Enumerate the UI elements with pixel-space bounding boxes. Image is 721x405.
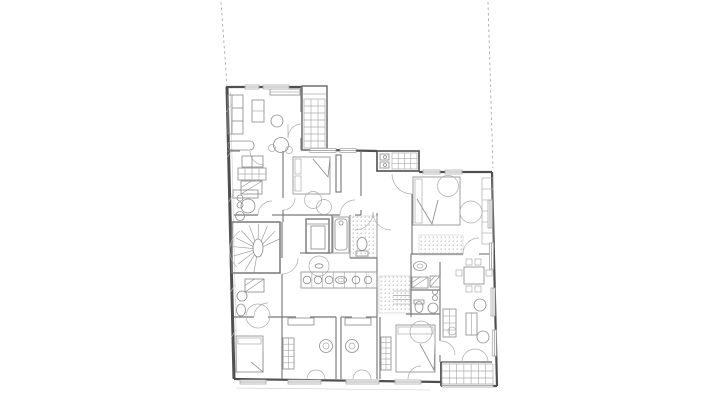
window-right-4	[492, 330, 496, 356]
counter-burner-3	[325, 276, 333, 284]
balcony2-grid	[442, 364, 493, 385]
elevator-cab	[311, 226, 325, 249]
wc2-sink	[428, 303, 438, 313]
wc-toilet	[357, 238, 367, 251]
door-arc-roomC	[408, 366, 421, 379]
door-arc-livingC	[441, 341, 455, 355]
window-right-3	[491, 288, 495, 316]
entry3-dots	[379, 276, 410, 313]
sidewalk-line	[236, 388, 430, 390]
bed2-fold	[417, 199, 438, 224]
chair-roomB	[346, 340, 359, 353]
armchair-living-a	[474, 299, 486, 311]
window-topright-1	[423, 170, 440, 174]
door-arc-bath1	[283, 198, 295, 210]
property-line-left	[221, 2, 227, 85]
bed3-fold	[251, 352, 263, 372]
bath1-toilet	[236, 212, 245, 221]
armchair-living-b	[477, 331, 489, 343]
kitchen2-washer	[430, 276, 440, 287]
door-arc-stairhall	[258, 201, 272, 215]
door-arc-balcony1	[288, 124, 302, 138]
bed1-pillow-a	[295, 159, 301, 174]
bath3-toilet	[237, 304, 246, 316]
counter-burner-1	[303, 276, 311, 284]
bed1-pillow-b	[295, 176, 301, 191]
kitchen-bay-tap-a	[384, 156, 387, 159]
bed4-chair	[410, 321, 432, 343]
page-background: Apartment building floor plan	[0, 0, 721, 405]
door-arc-bedroom1	[340, 200, 355, 215]
bed2-side-table	[438, 176, 459, 197]
counter-burner-2	[314, 276, 322, 284]
wc2-toilet	[415, 302, 423, 313]
desk-roomB	[345, 318, 371, 325]
door-arc-bedroom2	[392, 174, 412, 194]
counter-sink-inner	[338, 278, 344, 282]
window-right-1	[488, 200, 492, 228]
bathtub-inner	[335, 219, 347, 250]
bed2	[413, 177, 460, 225]
bed1	[293, 157, 330, 194]
window-mid-1	[310, 149, 336, 153]
dining-chair-5	[466, 286, 472, 292]
window-bottom-2	[288, 380, 321, 384]
kitchen-fridge	[242, 156, 263, 167]
bed4	[396, 325, 435, 372]
dining-chair-4	[486, 270, 492, 276]
kitchen2-dot-b	[433, 296, 438, 301]
bathtub-tap	[339, 221, 343, 225]
property-line-right	[488, 2, 493, 168]
window-bottom-1	[240, 380, 266, 384]
corridor-counter	[301, 272, 377, 288]
round-table-small	[274, 138, 289, 153]
window-top-2	[263, 85, 289, 89]
kitchen2-sink-inner	[417, 264, 423, 268]
dining-chair-3	[456, 270, 462, 276]
kitchen2-sink	[414, 262, 427, 271]
bed1-fold	[313, 159, 330, 177]
shelf-roomA	[283, 338, 294, 369]
counter-sink	[336, 277, 347, 284]
door-arc-roomA-right	[316, 370, 325, 379]
bed4-fold	[420, 344, 435, 370]
chair-roomB-inner	[349, 343, 355, 349]
dining-chair-6	[475, 286, 481, 292]
door-arc-left-room	[254, 303, 268, 317]
window-topright-2	[445, 170, 462, 174]
balcony-top-grid	[304, 99, 325, 148]
floor-plan: Apartment building floor plan	[0, 0, 721, 405]
shelf-roomC	[381, 337, 391, 370]
sofa	[228, 95, 243, 134]
door-arc-roomA-left	[307, 370, 316, 379]
desk-roomA	[288, 318, 314, 325]
window-mid-2	[340, 149, 356, 153]
bath3-washer	[245, 279, 264, 292]
kitchen2-stove	[412, 277, 428, 288]
entry2-dots	[419, 235, 463, 255]
balcony2-rail	[442, 384, 493, 387]
bed3-pillow	[238, 338, 261, 344]
bed4-pillow	[398, 327, 433, 334]
kitchen-bay-sink-b	[380, 162, 389, 168]
kitchen-bay-sink-a	[380, 154, 389, 160]
closet-bed1	[336, 155, 341, 192]
window-right-2	[490, 243, 494, 269]
door-arc-roomB-right	[362, 370, 371, 379]
chair-roomA	[320, 340, 333, 353]
door-arc-corridor	[282, 258, 298, 274]
bed2-chair	[460, 201, 482, 223]
window-top-1	[245, 85, 259, 89]
window-bottom-3	[346, 380, 379, 384]
balcony2-door-right	[475, 349, 488, 362]
armchair-fan	[271, 115, 283, 127]
bed1-pouf-b	[317, 200, 332, 215]
stair-newel	[253, 239, 263, 257]
dining-table	[464, 267, 484, 284]
balcony-top-outline	[302, 86, 327, 150]
door-arc-roomB-left	[353, 370, 362, 379]
bath3-sink	[237, 291, 247, 301]
window-bottom-4	[395, 380, 421, 384]
kitchen-counter	[238, 168, 266, 180]
counter-burner-5	[364, 276, 372, 284]
kitchen-stove	[241, 181, 262, 194]
chair-roomA-inner	[323, 343, 329, 349]
door-arc-unit2-entry	[463, 238, 479, 254]
dining-chair-1	[466, 259, 472, 265]
balcony2-door-left	[462, 349, 475, 362]
shelf-living	[443, 309, 456, 337]
hall-round-table-inner	[315, 264, 323, 268]
kitchen-bay-grid	[392, 153, 417, 169]
kitchen-bay-tap-b	[384, 164, 387, 167]
dining-chair-2	[475, 259, 481, 265]
bed3	[236, 336, 263, 372]
counter-burner-4	[352, 276, 360, 284]
